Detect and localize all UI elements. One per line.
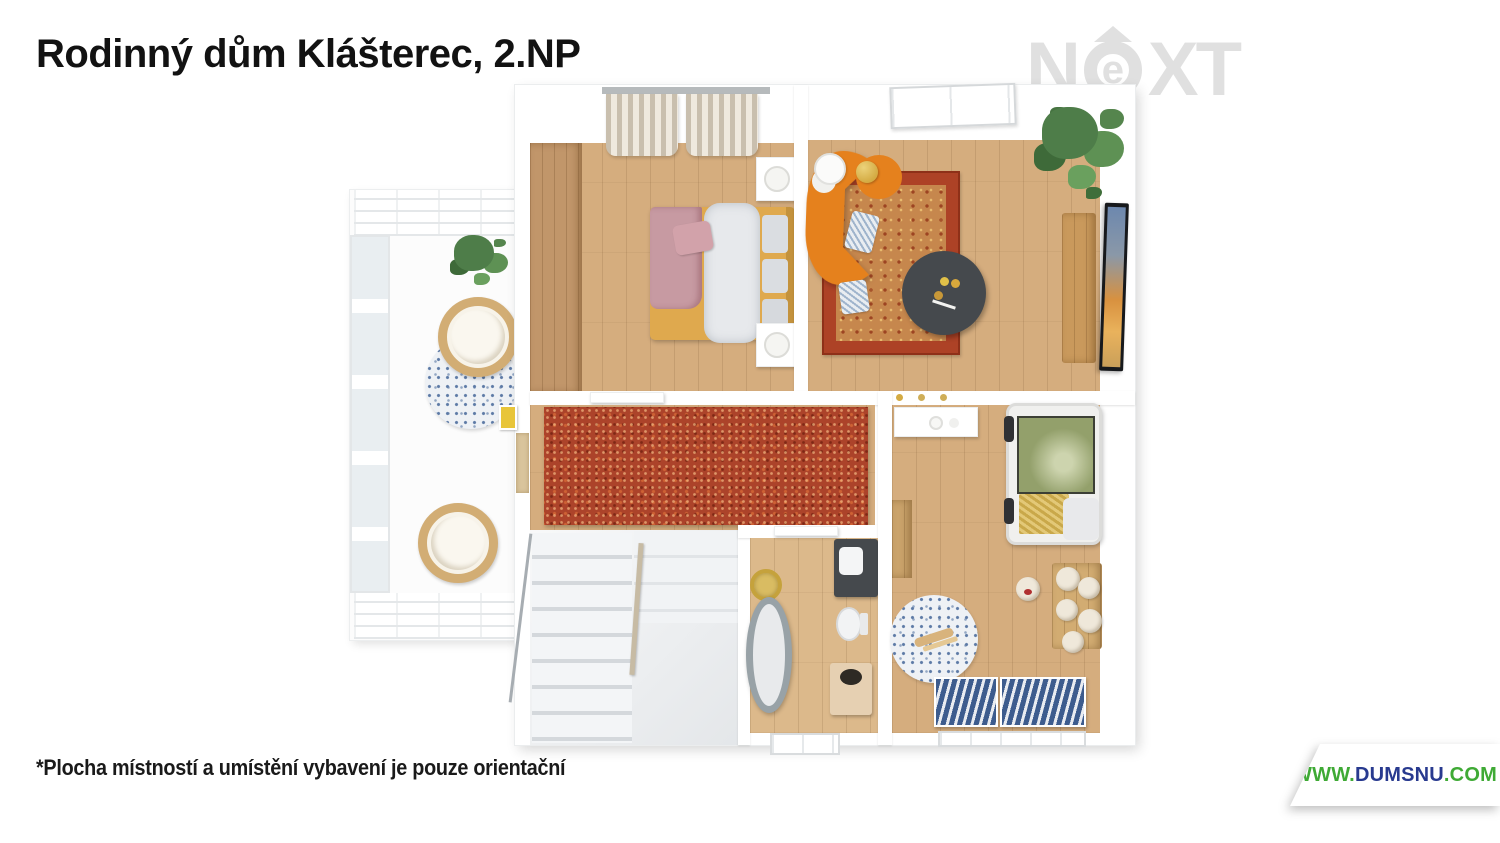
gold-blanket bbox=[1019, 494, 1069, 534]
teddy-scarf bbox=[1024, 589, 1032, 595]
logo-letter-t: T bbox=[1196, 40, 1239, 100]
floor-plan bbox=[350, 85, 1140, 750]
terrace-roof-slats-bottom bbox=[354, 593, 520, 639]
double-bed bbox=[650, 207, 795, 340]
website-suffix: .COM bbox=[1444, 764, 1497, 787]
website-name: DUMSNU bbox=[1355, 764, 1444, 787]
bed-pillow bbox=[762, 215, 788, 253]
rattan-chair bbox=[418, 503, 498, 583]
radiator bbox=[1000, 677, 1086, 727]
coffee-table bbox=[902, 251, 986, 335]
car-wheel bbox=[1004, 498, 1014, 524]
wardrobe bbox=[530, 143, 582, 393]
logo-caret-icon bbox=[1094, 26, 1132, 42]
logo-letter-x: X bbox=[1148, 40, 1196, 100]
interior-wall bbox=[878, 391, 892, 745]
hallway-console bbox=[590, 392, 664, 403]
page-title: Rodinný dům Klášterec, 2.NP bbox=[36, 32, 580, 77]
nightstand bbox=[756, 157, 796, 201]
website-banner: WWW.DUMSNU.COM bbox=[1290, 744, 1500, 806]
side-table bbox=[814, 153, 846, 185]
teddy-bear bbox=[1056, 599, 1078, 621]
bed-canopy bbox=[1019, 418, 1093, 492]
gold-knobs bbox=[896, 394, 903, 401]
chair-cushion bbox=[431, 516, 485, 570]
nightstand bbox=[756, 323, 796, 367]
toilet-tank bbox=[860, 613, 868, 635]
toilet bbox=[836, 603, 868, 645]
curtains bbox=[606, 94, 678, 156]
teddy-bear bbox=[1078, 609, 1102, 633]
website-prefix: WWW. bbox=[1293, 764, 1355, 787]
bed-pillow bbox=[1063, 498, 1099, 540]
car-wheel bbox=[1004, 416, 1014, 442]
skylight-window bbox=[889, 83, 1016, 129]
bathtub bbox=[746, 597, 792, 713]
window-frame bbox=[938, 731, 1086, 747]
tv-screen bbox=[1102, 207, 1126, 368]
gold-bath-rug bbox=[750, 569, 782, 601]
shaggy-carpet bbox=[544, 407, 868, 525]
fork bbox=[932, 299, 956, 309]
vanity-sink bbox=[834, 539, 878, 597]
bed-pillow bbox=[762, 259, 788, 293]
wooden-toy bbox=[914, 627, 955, 648]
stair-landing-steps bbox=[634, 531, 738, 623]
bedroom-window-rail bbox=[602, 87, 770, 94]
teddy-bear bbox=[1062, 631, 1084, 653]
stair-steps bbox=[532, 533, 632, 743]
page: { "header": { "title": "Rodinný dům Kláš… bbox=[0, 0, 1500, 843]
teddy-bear bbox=[1078, 577, 1100, 599]
kids-round-rug bbox=[890, 595, 978, 683]
disclaimer-note: *Plocha místností a umístění vybavení je… bbox=[36, 755, 565, 781]
white-duvet bbox=[704, 203, 760, 343]
terrace-door bbox=[516, 433, 529, 493]
terrace-windows bbox=[350, 235, 390, 593]
teddy-bear bbox=[1016, 577, 1040, 601]
table-lamp bbox=[764, 166, 790, 192]
gold-lamp bbox=[856, 161, 878, 183]
kids-desk bbox=[892, 500, 912, 578]
terrace-roof-slats-top bbox=[354, 190, 520, 236]
radiator bbox=[934, 677, 998, 727]
teddy-bear bbox=[1056, 567, 1080, 591]
website-banner-shape: WWW.DUMSNU.COM bbox=[1290, 744, 1500, 806]
kids-shelf bbox=[894, 407, 978, 437]
laundry-basket bbox=[830, 663, 872, 715]
table-lamp bbox=[764, 332, 790, 358]
sink-basin bbox=[839, 547, 863, 575]
logo-letter-e: e bbox=[1102, 50, 1124, 90]
curtains bbox=[686, 94, 758, 156]
toilet-bowl bbox=[836, 607, 862, 641]
sofa-pillow bbox=[838, 279, 870, 315]
shelf-knob bbox=[929, 416, 943, 430]
chair-cushion bbox=[451, 310, 505, 364]
bathroom-shelf bbox=[774, 526, 838, 536]
rattan-chair bbox=[438, 297, 518, 377]
fruit bbox=[940, 277, 949, 286]
car-bed bbox=[1006, 403, 1102, 545]
bathroom-window-frame bbox=[770, 733, 840, 755]
tv-console bbox=[1062, 213, 1096, 363]
basket-opening bbox=[840, 669, 862, 685]
wall-picture bbox=[499, 405, 517, 430]
